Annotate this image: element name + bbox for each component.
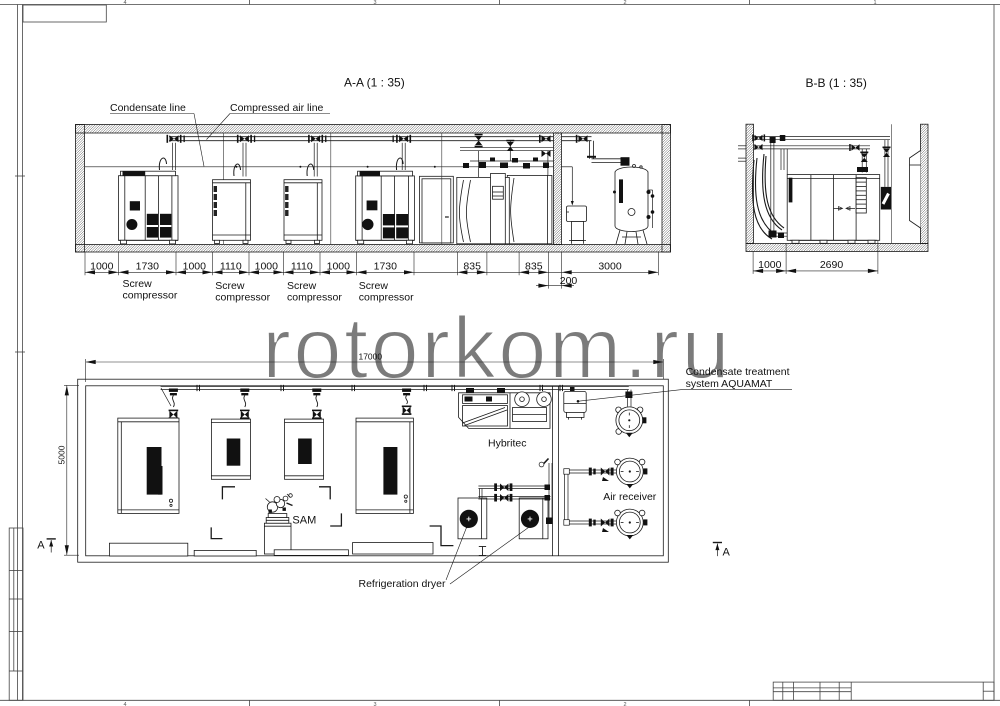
svg-text:2: 2 (623, 0, 626, 6)
svg-text:Compressed air line: Compressed air line (230, 102, 324, 114)
svg-text:compressor: compressor (359, 291, 414, 303)
svg-text:1000: 1000 (758, 259, 782, 271)
svg-text:1730: 1730 (374, 261, 398, 273)
svg-text:835: 835 (525, 261, 543, 273)
svg-text:2690: 2690 (820, 259, 844, 271)
svg-text:5000: 5000 (57, 445, 67, 464)
svg-text:1: 1 (873, 0, 876, 6)
svg-text:17000: 17000 (358, 351, 382, 361)
svg-text:compressor: compressor (215, 291, 270, 303)
svg-text:1000: 1000 (90, 261, 114, 273)
svg-text:Condensate treatment: Condensate treatment (686, 366, 790, 378)
svg-text:3: 3 (373, 702, 376, 706)
svg-text:200: 200 (560, 275, 578, 287)
svg-text:3: 3 (373, 0, 376, 6)
svg-text:1000: 1000 (255, 261, 279, 273)
svg-text:SAM: SAM (292, 515, 316, 527)
svg-text:Screw: Screw (359, 280, 389, 292)
svg-text:1000: 1000 (183, 261, 207, 273)
svg-text:Screw: Screw (215, 280, 245, 292)
svg-text:system AQUAMAT: system AQUAMAT (686, 378, 773, 390)
svg-text:1730: 1730 (136, 261, 160, 273)
svg-text:835: 835 (463, 261, 481, 273)
svg-text:Condensate line: Condensate line (110, 102, 186, 114)
svg-text:1000: 1000 (327, 261, 351, 273)
svg-text:Air receiver: Air receiver (603, 491, 657, 503)
svg-text:1110: 1110 (220, 261, 242, 273)
svg-text:Hybritec: Hybritec (488, 438, 527, 450)
svg-text:B-B (1 : 35): B-B (1 : 35) (806, 76, 867, 90)
svg-text:compressor: compressor (287, 291, 342, 303)
svg-text:A-A (1 : 35): A-A (1 : 35) (344, 76, 405, 90)
svg-text:4: 4 (123, 702, 126, 706)
svg-text:Screw: Screw (123, 278, 153, 290)
svg-text:rotorkom.ru: rotorkom.ru (262, 300, 732, 397)
svg-text:3000: 3000 (598, 261, 622, 273)
svg-text:A: A (37, 539, 45, 551)
svg-text:1110: 1110 (291, 261, 313, 273)
svg-text:Refrigeration dryer: Refrigeration dryer (359, 578, 446, 590)
svg-text:Screw: Screw (287, 280, 317, 292)
svg-text:compressor: compressor (123, 289, 178, 301)
svg-text:4: 4 (123, 0, 126, 6)
svg-text:A: A (723, 547, 731, 559)
svg-text:2: 2 (623, 702, 626, 706)
